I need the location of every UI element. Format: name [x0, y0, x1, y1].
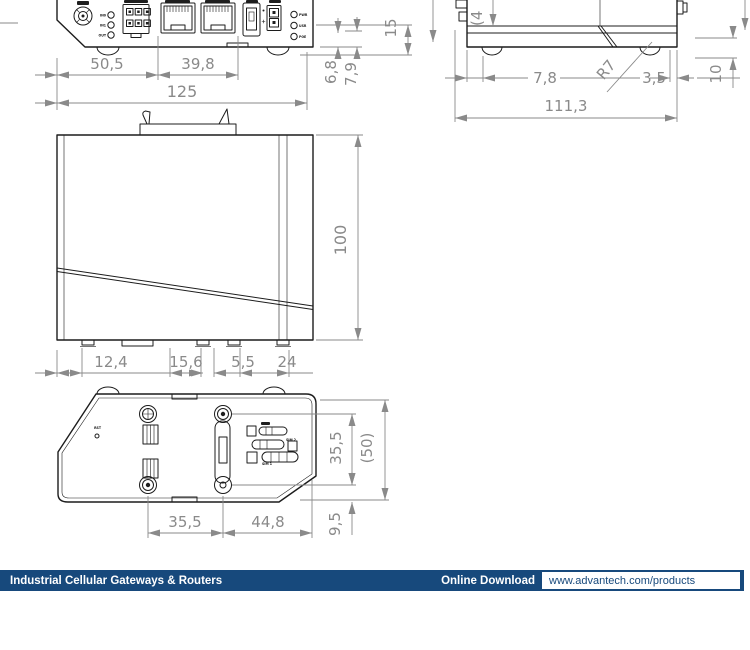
dim-length: 111,3 — [545, 97, 588, 115]
power-connector-icon — [262, 0, 281, 31]
dim-width-1: 50,5 — [90, 55, 123, 73]
io-label: OUT — [99, 34, 107, 38]
footer-download-group: Online Download www.advantech.com/produc… — [441, 572, 744, 589]
dim-radius: R7 — [593, 56, 620, 83]
screw-posts — [140, 406, 232, 494]
top-outline — [57, 135, 313, 340]
dim-hole-h: 35,5 — [168, 513, 201, 531]
download-url[interactable]: www.advantech.com/products — [549, 575, 695, 587]
bottom-outline — [58, 394, 316, 502]
dim-height-3: 15 — [382, 18, 400, 37]
dim-width-total: 125 — [167, 82, 198, 101]
connector-label — [269, 0, 281, 3]
bottom-view: RST SIM 2 SIM 1 35,5 (50) 9,5 — [58, 387, 389, 538]
dim-depth: 100 — [331, 225, 350, 256]
footer-category-label: Industrial Cellular Gateways & Routers — [0, 575, 222, 587]
vent-slots — [143, 421, 230, 483]
side-outline — [467, 0, 677, 47]
io-label: IN1 — [100, 24, 106, 28]
io-led-group: IN0 IN1 OUT — [99, 12, 115, 38]
usb-port-icon — [243, 0, 260, 36]
din-clip-step — [459, 12, 467, 21]
plus-mark — [262, 20, 265, 23]
top-view: 100 12,4 15,6 5,5 24 — [35, 109, 363, 377]
din-clip — [140, 109, 236, 135]
technical-drawing: IN0 IN1 OUT — [0, 0, 750, 650]
dim-hole-h2: 44,8 — [251, 513, 284, 531]
dim-f1: 12,4 — [94, 353, 127, 371]
minus-mark — [263, 10, 265, 12]
side-antenna-stub — [683, 3, 687, 12]
dim-height: 10 — [707, 64, 725, 83]
reset-label: RST — [94, 426, 102, 430]
din-clip-step — [456, 0, 467, 8]
led-label: POE — [299, 35, 306, 39]
front-dimensions: 50,5 39,8 125 6,8 7,9 15 — [35, 0, 433, 110]
dim-partial: (4 — [468, 11, 486, 26]
dim-foot-offset: 7,8 — [533, 69, 557, 87]
io-label: IN0 — [100, 14, 107, 18]
dim-height-1: 6,8 — [322, 60, 340, 84]
bottom-dimensions: 35,5 (50) 9,5 35,5 44,8 — [148, 400, 389, 538]
side-band-lines — [467, 26, 677, 33]
dim-f4: 24 — [277, 353, 296, 371]
side-feet — [482, 47, 660, 55]
dim-f3: 5,5 — [231, 353, 255, 371]
connector-label — [77, 1, 89, 5]
dim-height-2: 7,9 — [342, 62, 360, 86]
footer-bar: Industrial Cellular Gateways & Routers O… — [0, 570, 744, 591]
datasheet-page: IN0 IN1 OUT — [0, 0, 750, 650]
dim-offset: 9,5 — [326, 512, 344, 536]
led-label: PWR — [299, 13, 308, 17]
connector-label — [124, 0, 148, 3]
online-download-label: Online Download — [441, 575, 535, 587]
download-url-box[interactable]: www.advantech.com/products — [542, 572, 740, 589]
front-panel-view: IN0 IN1 OUT — [0, 0, 433, 110]
sim-label: SIM 1 — [262, 462, 272, 466]
sim-slot-icons: SIM 2 SIM 1 — [247, 422, 298, 466]
led-label: USR — [299, 24, 307, 28]
dim-overall: (50) — [358, 433, 376, 464]
antenna-connector-icon — [74, 1, 92, 25]
reset-button-icon: RST — [94, 426, 102, 438]
ethernet-port-icon — [161, 0, 195, 33]
side-diagonal — [598, 26, 617, 47]
side-antenna-stub — [677, 1, 683, 14]
dim-hole-v: 35,5 — [327, 431, 345, 464]
top-diagonal-lines — [57, 268, 313, 310]
bottom-feet — [97, 387, 285, 394]
bottom-inner-outline — [62, 398, 312, 498]
top-inner-lines — [64, 135, 287, 340]
dim-edge: 3,5 — [642, 69, 666, 87]
top-feet-tabs — [80, 340, 291, 347]
side-dimensions: (4 7,8 3,5 R7 10 111,3 — [445, 0, 745, 122]
dim-width-2: 39,8 — [181, 55, 214, 73]
terminal-block-icon — [123, 0, 150, 38]
front-feet — [97, 47, 289, 55]
ethernet-port-icon — [201, 0, 235, 33]
side-view: (4 7,8 3,5 R7 10 111,3 — [445, 0, 745, 122]
status-led-group: PWR USR POE — [291, 11, 308, 39]
dim-f2: 15,6 — [169, 353, 202, 371]
